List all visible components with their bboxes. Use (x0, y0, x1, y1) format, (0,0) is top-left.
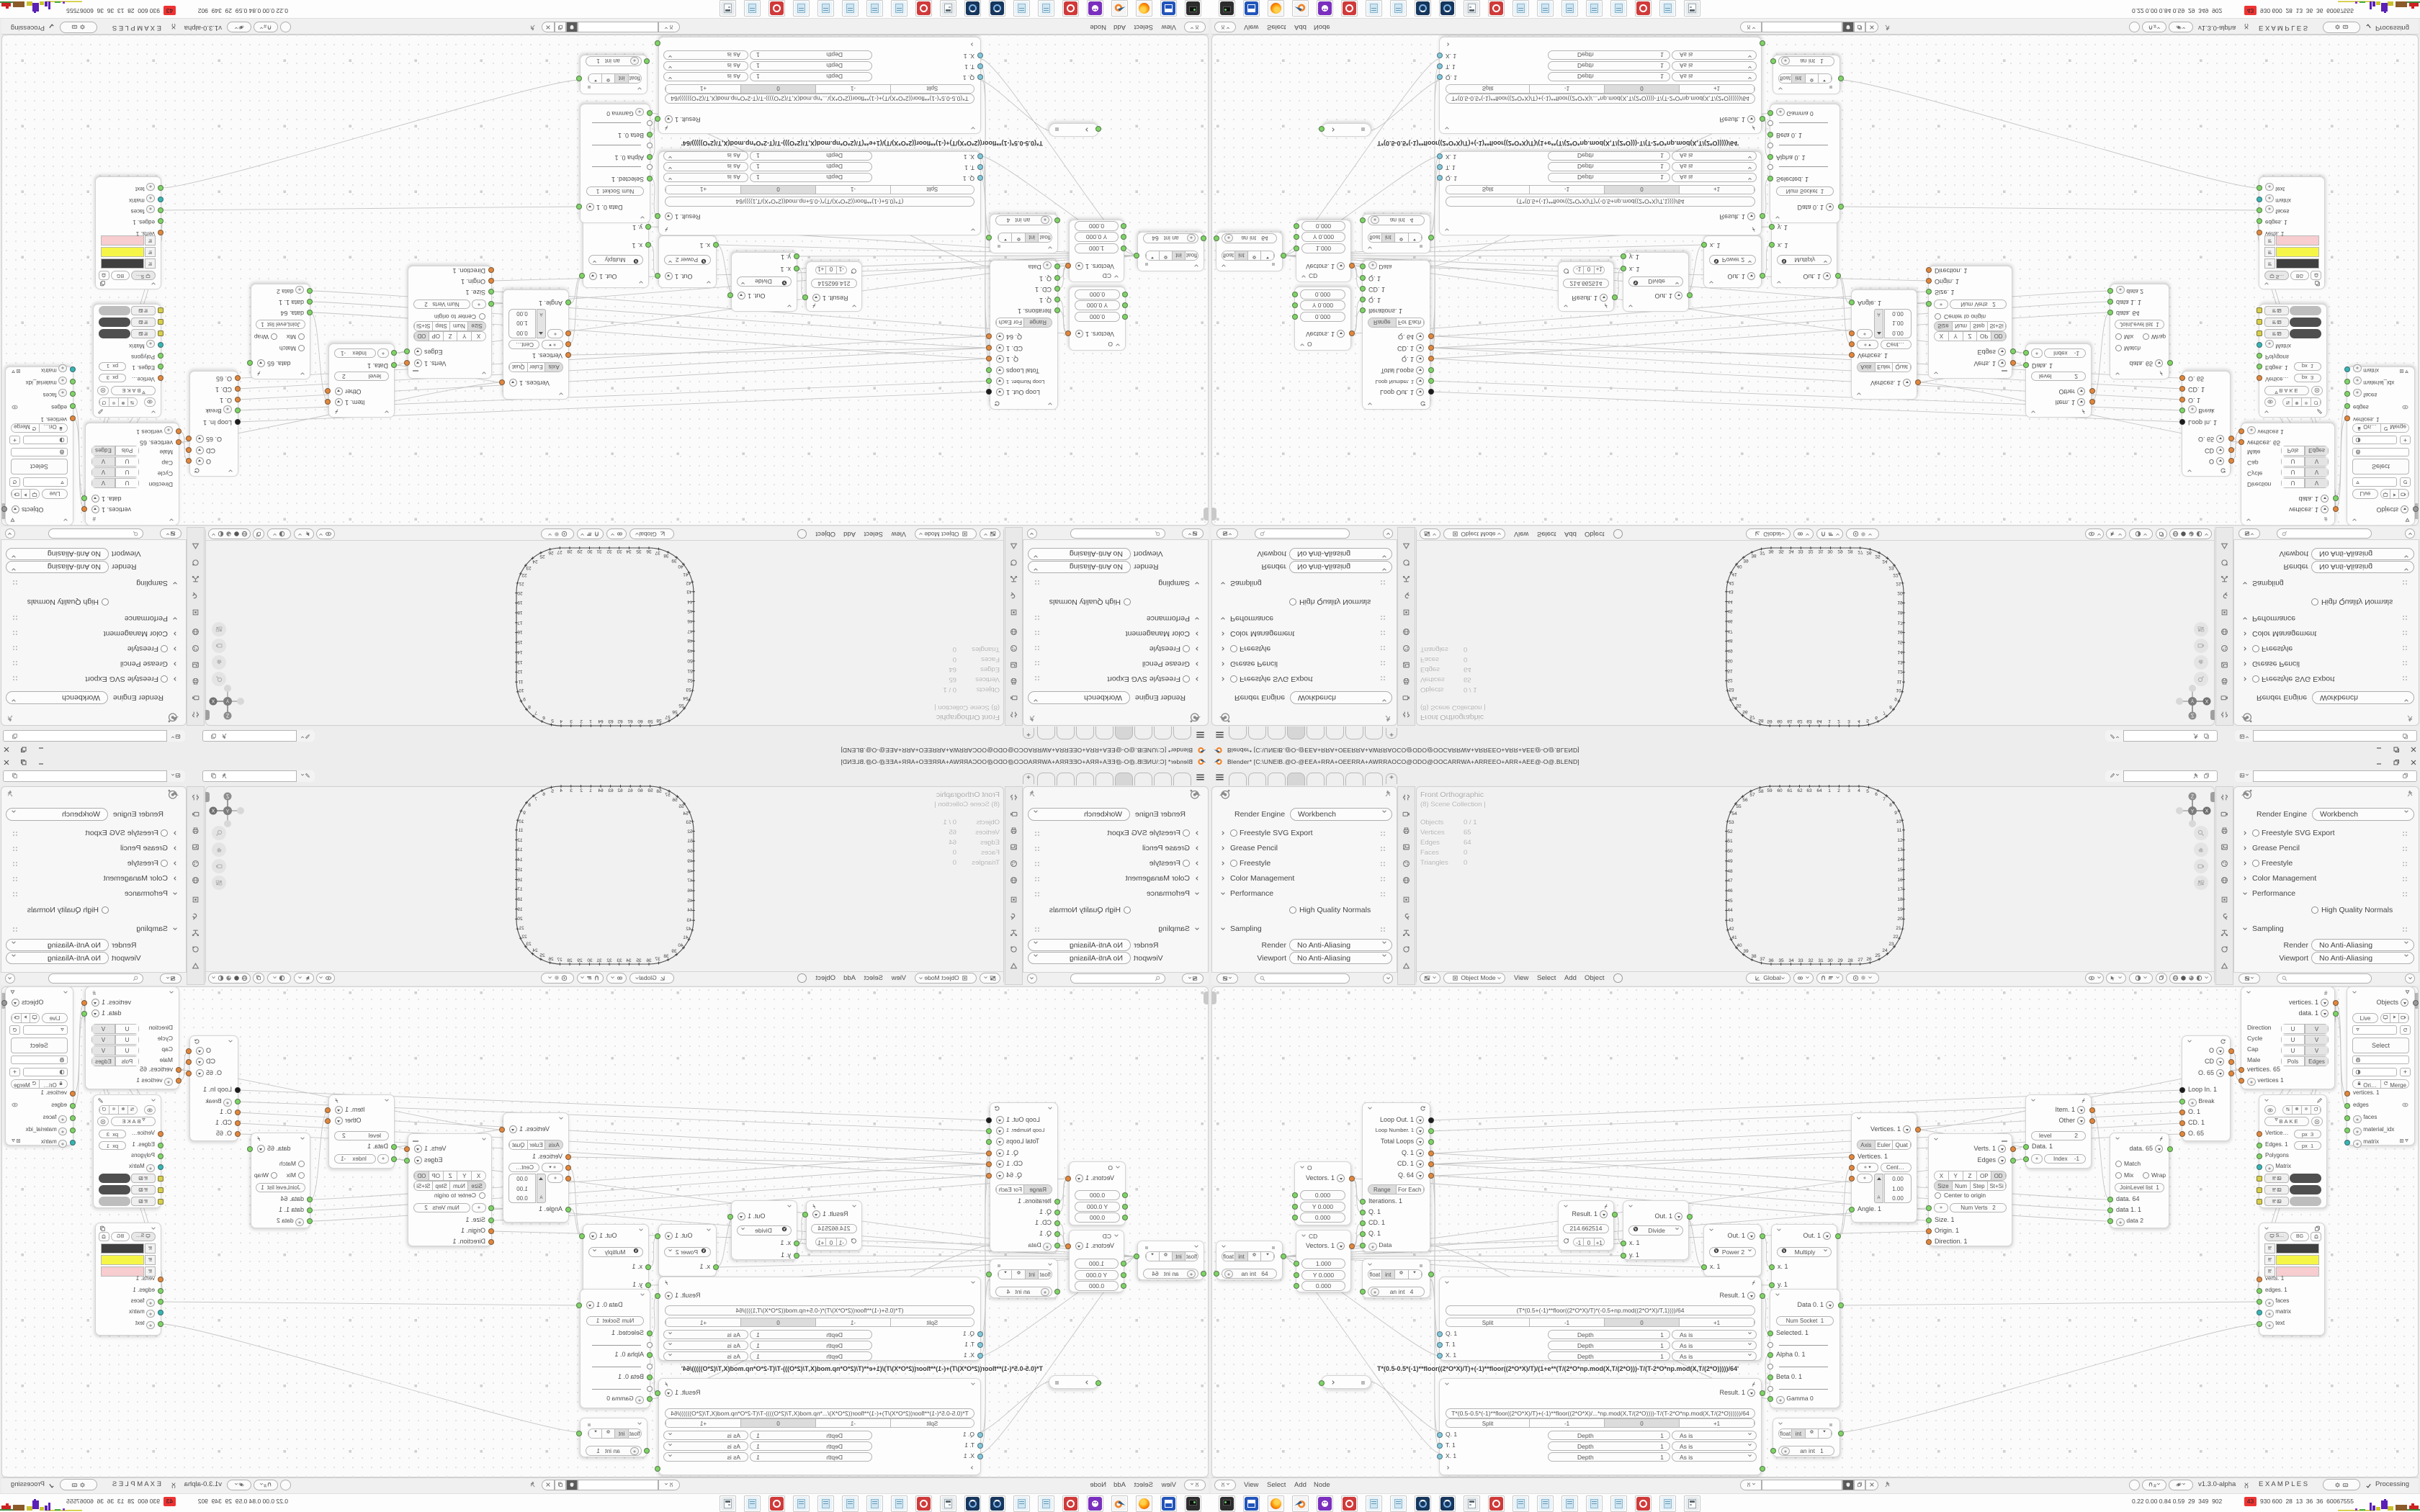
svg-text:16: 16 (1897, 878, 1903, 883)
svg-text:39: 39 (1743, 558, 1749, 563)
svg-text:60: 60 (1777, 719, 1783, 724)
svg-text:2: 2 (580, 788, 583, 793)
svg-text:17: 17 (1897, 887, 1903, 892)
svg-text:26: 26 (548, 550, 554, 555)
svg-text:37: 37 (1760, 957, 1765, 962)
svg-text:4: 4 (560, 788, 563, 793)
svg-text:63: 63 (608, 788, 614, 793)
svg-text:15: 15 (1897, 639, 1903, 644)
svg-text:42: 42 (1729, 580, 1734, 585)
svg-text:63: 63 (1806, 719, 1812, 724)
svg-text:X: X (211, 809, 215, 814)
svg-text:12: 12 (517, 669, 523, 674)
svg-text:7: 7 (1883, 797, 1886, 802)
svg-text:60: 60 (1777, 788, 1783, 793)
svg-text:16: 16 (1897, 629, 1903, 634)
svg-text:27: 27 (557, 958, 563, 963)
svg-text:47: 47 (1727, 878, 1733, 883)
svg-text:58: 58 (1758, 789, 1764, 794)
svg-text:52: 52 (687, 678, 693, 683)
svg-text:7: 7 (1883, 710, 1886, 715)
svg-text:18: 18 (1897, 897, 1903, 902)
svg-text:35: 35 (1778, 958, 1784, 963)
svg-text:5: 5 (551, 718, 554, 723)
svg-text:30: 30 (1827, 549, 1833, 554)
svg-text:16: 16 (517, 629, 523, 634)
svg-text:Y: Y (2191, 698, 2195, 703)
svg-text:56: 56 (1742, 798, 1748, 803)
svg-text:14: 14 (517, 649, 523, 654)
svg-text:63: 63 (1806, 788, 1812, 793)
svg-text:44: 44 (1727, 599, 1733, 604)
svg-text:40: 40 (678, 943, 684, 948)
svg-text:48: 48 (1727, 638, 1733, 643)
svg-text:Y: Y (225, 698, 229, 703)
svg-text:59: 59 (1767, 719, 1773, 724)
svg-text:25: 25 (539, 554, 545, 559)
svg-text:63: 63 (608, 719, 614, 724)
svg-text:52: 52 (687, 829, 693, 834)
svg-text:6: 6 (1875, 715, 1878, 720)
svg-text:14: 14 (1897, 858, 1903, 863)
svg-text:17: 17 (517, 620, 523, 625)
svg-text:35: 35 (636, 958, 642, 963)
svg-text:44: 44 (687, 908, 693, 913)
svg-text:32: 32 (1808, 958, 1814, 963)
svg-text:24: 24 (532, 559, 538, 564)
svg-text:21: 21 (519, 926, 524, 931)
svg-text:41: 41 (683, 572, 689, 577)
svg-text:60: 60 (637, 788, 643, 793)
svg-text:54: 54 (1731, 696, 1737, 701)
svg-text:32: 32 (1808, 549, 1814, 554)
svg-text:29: 29 (1837, 549, 1843, 554)
svg-text:6: 6 (1875, 792, 1878, 797)
svg-text:29: 29 (577, 958, 583, 963)
svg-text:48: 48 (687, 869, 693, 874)
svg-text:58: 58 (1758, 718, 1764, 723)
svg-text:20: 20 (517, 590, 523, 595)
svg-text:46: 46 (687, 888, 693, 894)
svg-text:48: 48 (687, 638, 693, 643)
svg-text:36: 36 (1768, 549, 1774, 554)
svg-text:46: 46 (687, 618, 693, 624)
svg-text:42: 42 (1729, 927, 1734, 932)
svg-text:1: 1 (1828, 788, 1831, 793)
svg-text:31: 31 (1818, 958, 1824, 963)
svg-text:5: 5 (1866, 789, 1869, 794)
svg-text:44: 44 (687, 599, 693, 604)
svg-text:15: 15 (517, 639, 523, 644)
svg-text:59: 59 (647, 788, 653, 793)
svg-text:23: 23 (1888, 565, 1894, 570)
svg-text:7: 7 (534, 710, 537, 715)
svg-text:53: 53 (686, 820, 691, 825)
svg-text:11: 11 (1897, 679, 1902, 684)
svg-text:25: 25 (1875, 554, 1881, 559)
svg-text:4: 4 (1857, 788, 1860, 793)
svg-text:1: 1 (589, 788, 592, 793)
svg-text:38: 38 (1751, 954, 1757, 959)
svg-text:4: 4 (560, 719, 563, 724)
svg-text:31: 31 (596, 549, 602, 554)
svg-text:47: 47 (687, 878, 693, 883)
svg-text:15: 15 (517, 868, 523, 873)
svg-text:61: 61 (1787, 719, 1793, 724)
svg-text:51: 51 (687, 668, 693, 673)
svg-text:18: 18 (517, 897, 523, 902)
svg-text:41: 41 (1731, 572, 1737, 577)
svg-text:37: 37 (655, 550, 660, 555)
svg-text:64: 64 (598, 788, 604, 793)
svg-text:33: 33 (1798, 958, 1803, 963)
svg-text:23: 23 (1888, 942, 1894, 947)
svg-text:50: 50 (1727, 849, 1733, 854)
svg-text:64: 64 (598, 719, 604, 724)
svg-text:34: 34 (626, 549, 632, 554)
svg-text:10: 10 (1896, 688, 1901, 693)
svg-text:53: 53 (686, 687, 691, 692)
svg-text:28: 28 (1847, 549, 1853, 554)
svg-text:30: 30 (587, 549, 593, 554)
svg-text:23: 23 (526, 565, 532, 570)
svg-text:55: 55 (678, 703, 684, 708)
svg-text:43: 43 (1728, 918, 1734, 923)
svg-text:62: 62 (617, 719, 623, 724)
svg-text:5: 5 (1866, 718, 1869, 723)
svg-text:19: 19 (517, 907, 523, 912)
svg-text:22: 22 (1893, 935, 1899, 940)
svg-text:51: 51 (1727, 839, 1733, 844)
svg-text:45: 45 (1727, 899, 1733, 904)
svg-text:11: 11 (518, 679, 523, 684)
svg-text:60: 60 (637, 719, 643, 724)
svg-text:45: 45 (687, 608, 693, 613)
svg-text:36: 36 (1768, 958, 1774, 963)
svg-text:28: 28 (1847, 958, 1853, 963)
svg-text:21: 21 (519, 581, 524, 586)
svg-text:51: 51 (1727, 668, 1733, 673)
svg-text:57: 57 (665, 714, 671, 719)
svg-text:21: 21 (1896, 926, 1901, 931)
svg-text:32: 32 (606, 549, 612, 554)
svg-text:34: 34 (626, 958, 632, 963)
svg-text:11: 11 (1897, 828, 1902, 833)
svg-text:19: 19 (517, 600, 523, 605)
svg-text:37: 37 (655, 957, 660, 962)
svg-text:61: 61 (627, 719, 633, 724)
svg-text:56: 56 (672, 798, 678, 803)
svg-text:20: 20 (517, 917, 523, 922)
svg-text:29: 29 (577, 549, 583, 554)
svg-text:47: 47 (687, 629, 693, 634)
svg-text:52: 52 (1727, 678, 1733, 683)
svg-text:54: 54 (1731, 811, 1737, 816)
svg-text:9: 9 (523, 696, 526, 701)
svg-text:24: 24 (1882, 948, 1888, 953)
svg-text:46: 46 (1727, 888, 1733, 894)
svg-text:22: 22 (521, 935, 527, 940)
svg-text:36: 36 (646, 549, 652, 554)
svg-text:59: 59 (1767, 788, 1773, 793)
svg-text:39: 39 (1743, 949, 1749, 954)
svg-text:42: 42 (686, 927, 691, 932)
svg-text:18: 18 (1897, 610, 1903, 615)
svg-text:35: 35 (1778, 549, 1784, 554)
svg-text:3: 3 (1847, 788, 1850, 793)
svg-text:36: 36 (646, 958, 652, 963)
svg-text:2: 2 (580, 719, 583, 724)
svg-text:1: 1 (589, 719, 592, 724)
svg-text:19: 19 (1897, 600, 1903, 605)
svg-text:22: 22 (521, 572, 527, 577)
svg-text:31: 31 (1818, 549, 1824, 554)
svg-text:25: 25 (1875, 953, 1881, 958)
svg-text:55: 55 (1736, 804, 1742, 809)
svg-text:6: 6 (542, 792, 545, 797)
svg-text:30: 30 (1827, 958, 1833, 963)
svg-text:26: 26 (548, 957, 554, 962)
svg-text:3: 3 (570, 788, 573, 793)
svg-text:45: 45 (687, 899, 693, 904)
svg-text:20: 20 (1897, 917, 1903, 922)
svg-text:27: 27 (557, 549, 563, 554)
svg-text:45: 45 (1727, 608, 1733, 613)
svg-text:43: 43 (686, 589, 692, 594)
svg-text:54: 54 (683, 696, 689, 701)
svg-text:Z: Z (225, 713, 229, 718)
svg-text:9: 9 (1894, 696, 1897, 701)
svg-text:61: 61 (1787, 788, 1793, 793)
svg-text:11: 11 (518, 828, 523, 833)
svg-text:40: 40 (1736, 943, 1742, 948)
svg-text:13: 13 (1897, 660, 1903, 665)
svg-text:56: 56 (1742, 709, 1748, 714)
svg-text:14: 14 (1897, 649, 1903, 654)
svg-text:33: 33 (617, 549, 622, 554)
svg-text:2: 2 (1837, 788, 1840, 793)
svg-text:41: 41 (1731, 935, 1737, 940)
svg-text:17: 17 (1897, 620, 1903, 625)
svg-text:49: 49 (687, 859, 693, 864)
svg-text:35: 35 (636, 549, 642, 554)
svg-text:10: 10 (1896, 819, 1901, 824)
svg-text:19: 19 (1897, 907, 1903, 912)
svg-text:50: 50 (687, 658, 693, 663)
svg-text:52: 52 (1727, 829, 1733, 834)
svg-text:59: 59 (647, 719, 653, 724)
svg-text:56: 56 (672, 709, 678, 714)
svg-text:4: 4 (1857, 719, 1860, 724)
svg-text:62: 62 (1797, 719, 1803, 724)
svg-text:1: 1 (1828, 719, 1831, 724)
svg-text:49: 49 (687, 648, 693, 653)
svg-text:38: 38 (663, 553, 669, 558)
svg-text:21: 21 (1896, 581, 1901, 586)
svg-text:43: 43 (686, 918, 692, 923)
svg-text:39: 39 (671, 949, 677, 954)
svg-text:6: 6 (542, 715, 545, 720)
svg-text:13: 13 (1897, 847, 1903, 852)
svg-text:27: 27 (1857, 958, 1863, 963)
svg-text:38: 38 (663, 954, 669, 959)
svg-text:57: 57 (1749, 793, 1755, 798)
svg-text:25: 25 (539, 953, 545, 958)
svg-text:Y: Y (225, 809, 229, 814)
svg-text:14: 14 (517, 858, 523, 863)
svg-text:49: 49 (1727, 859, 1733, 864)
svg-text:X: X (2205, 698, 2209, 703)
svg-text:Z: Z (2191, 713, 2195, 718)
svg-text:32: 32 (606, 958, 612, 963)
svg-text:33: 33 (1798, 549, 1803, 554)
svg-text:55: 55 (678, 804, 684, 809)
svg-text:27: 27 (1857, 549, 1863, 554)
svg-text:43: 43 (1728, 589, 1734, 594)
svg-text:53: 53 (1729, 687, 1734, 692)
svg-text:17: 17 (517, 887, 523, 892)
svg-text:5: 5 (551, 789, 554, 794)
svg-text:40: 40 (678, 564, 684, 569)
svg-text:8: 8 (528, 803, 531, 808)
svg-text:28: 28 (567, 549, 573, 554)
svg-text:62: 62 (617, 788, 623, 793)
svg-text:8: 8 (528, 704, 531, 709)
svg-text:Y: Y (2191, 809, 2195, 814)
svg-text:47: 47 (1727, 629, 1733, 634)
svg-text:34: 34 (1788, 549, 1794, 554)
svg-text:44: 44 (1727, 908, 1733, 913)
svg-text:58: 58 (656, 789, 662, 794)
svg-text:40: 40 (1736, 564, 1742, 569)
svg-text:16: 16 (517, 878, 523, 883)
svg-text:61: 61 (627, 788, 633, 793)
svg-text:50: 50 (1727, 658, 1733, 663)
svg-text:54: 54 (683, 811, 689, 816)
svg-text:49: 49 (1727, 648, 1733, 653)
svg-text:57: 57 (1749, 714, 1755, 719)
svg-text:12: 12 (1897, 838, 1903, 843)
svg-text:26: 26 (1866, 550, 1872, 555)
svg-text:33: 33 (617, 958, 622, 963)
svg-text:24: 24 (1882, 559, 1888, 564)
svg-text:X: X (211, 698, 215, 703)
svg-text:18: 18 (517, 610, 523, 615)
svg-text:55: 55 (1736, 703, 1742, 708)
svg-text:46: 46 (1727, 618, 1733, 624)
svg-text:7: 7 (534, 797, 537, 802)
svg-text:2: 2 (1837, 719, 1840, 724)
svg-text:64: 64 (1816, 719, 1822, 724)
svg-text:10: 10 (519, 688, 524, 693)
svg-text:31: 31 (596, 958, 602, 963)
svg-text:34: 34 (1788, 958, 1794, 963)
svg-text:57: 57 (665, 793, 671, 798)
svg-text:30: 30 (587, 958, 593, 963)
svg-text:Z: Z (225, 795, 229, 800)
svg-text:29: 29 (1837, 958, 1843, 963)
svg-text:13: 13 (517, 847, 523, 852)
svg-text:39: 39 (671, 558, 677, 563)
svg-text:42: 42 (686, 580, 691, 585)
svg-text:62: 62 (1797, 788, 1803, 793)
svg-text:41: 41 (683, 935, 689, 940)
svg-text:12: 12 (1897, 669, 1903, 674)
svg-text:28: 28 (567, 958, 573, 963)
svg-text:23: 23 (526, 942, 532, 947)
svg-text:3: 3 (1847, 719, 1850, 724)
svg-text:51: 51 (687, 839, 693, 844)
svg-text:58: 58 (656, 718, 662, 723)
svg-text:9: 9 (1894, 811, 1897, 816)
svg-text:64: 64 (1816, 788, 1822, 793)
svg-text:8: 8 (1889, 704, 1892, 709)
svg-text:15: 15 (1897, 868, 1903, 873)
svg-text:22: 22 (1893, 572, 1899, 577)
svg-text:13: 13 (517, 660, 523, 665)
svg-text:53: 53 (1729, 820, 1734, 825)
svg-text:26: 26 (1866, 957, 1872, 962)
svg-text:10: 10 (519, 819, 524, 824)
svg-text:38: 38 (1751, 553, 1757, 558)
svg-text:24: 24 (532, 948, 538, 953)
svg-text:9: 9 (523, 811, 526, 816)
svg-text:50: 50 (687, 849, 693, 854)
svg-text:20: 20 (1897, 590, 1903, 595)
svg-text:8: 8 (1889, 803, 1892, 808)
svg-text:48: 48 (1727, 869, 1733, 874)
svg-text:Z: Z (2191, 795, 2195, 800)
svg-text:X: X (2205, 809, 2209, 814)
svg-text:37: 37 (1760, 550, 1765, 555)
svg-text:12: 12 (517, 838, 523, 843)
svg-text:3: 3 (570, 719, 573, 724)
